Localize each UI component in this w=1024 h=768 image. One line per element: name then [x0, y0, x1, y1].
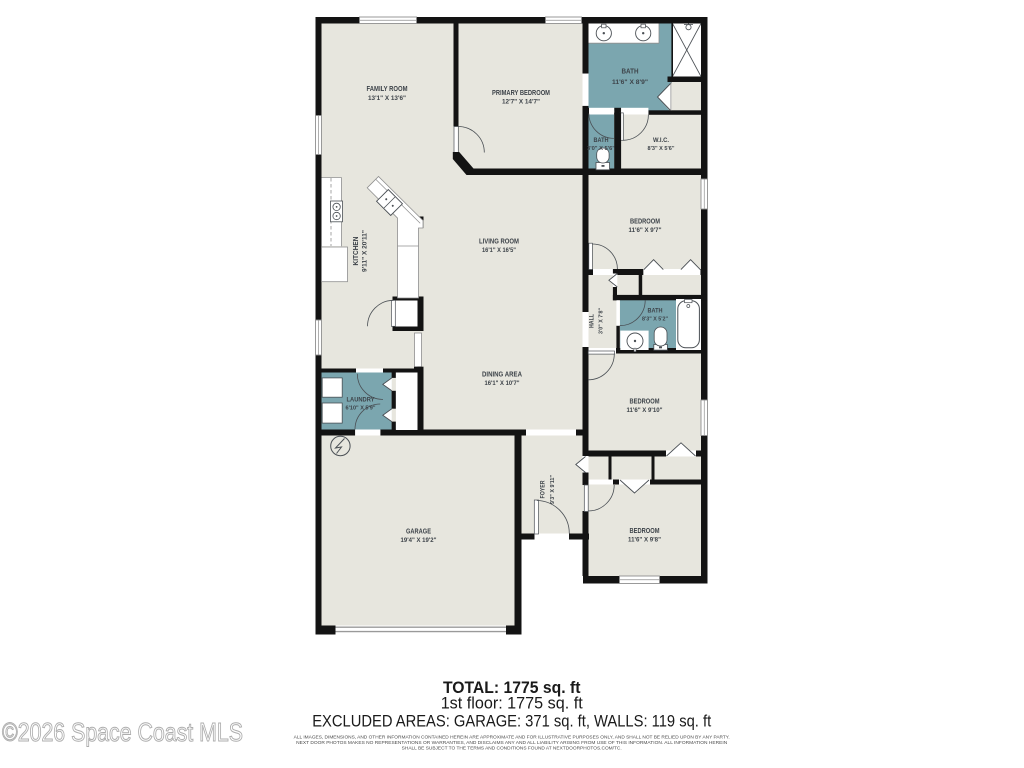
svg-text:8'3" X 5'2": 8'3" X 5'2" — [642, 316, 668, 322]
svg-text:FAMILY ROOM: FAMILY ROOM — [367, 86, 408, 93]
svg-text:BEDROOM: BEDROOM — [630, 218, 660, 225]
svg-text:KITCHEN: KITCHEN — [353, 237, 360, 266]
svg-text:11'6" X 9'10": 11'6" X 9'10" — [627, 407, 663, 414]
svg-text:NEXT DOOR PHOTOS MAKES NO REPR: NEXT DOOR PHOTOS MAKES NO REPRESENTATION… — [296, 740, 727, 745]
svg-text:8'3" X 5'6": 8'3" X 5'6" — [648, 146, 675, 152]
svg-text:11'6" X 8'9": 11'6" X 8'9" — [612, 79, 648, 86]
svg-text:GARAGE: GARAGE — [406, 529, 431, 536]
svg-text:11'6" X 9'8": 11'6" X 9'8" — [628, 537, 661, 544]
svg-text:11'6" X 9'7": 11'6" X 9'7" — [629, 227, 662, 234]
svg-text:12'7" X 14'7": 12'7" X 14'7" — [502, 99, 540, 106]
svg-text:LIVING ROOM: LIVING ROOM — [479, 239, 519, 246]
svg-text:SHALL BE SUBJECT TO THE TERMS: SHALL BE SUBJECT TO THE TERMS AND CONDIT… — [402, 746, 622, 751]
svg-text:BATH: BATH — [594, 138, 609, 144]
svg-text:DINING AREA: DINING AREA — [482, 371, 522, 378]
svg-text:©2026 Space Coast MLS: ©2026 Space Coast MLS — [2, 717, 243, 747]
svg-text:19'4" X 19'2": 19'4" X 19'2" — [401, 537, 437, 544]
svg-text:9'3" X 9'11": 9'3" X 9'11" — [550, 475, 556, 504]
svg-text:PRIMARY BEDROOM: PRIMARY BEDROOM — [492, 90, 550, 97]
svg-text:1st floor: 1775 sq. ft: 1st floor: 1775 sq. ft — [441, 695, 583, 713]
svg-text:BEDROOM: BEDROOM — [630, 528, 660, 535]
svg-text:16'1" X 10'7": 16'1" X 10'7" — [485, 380, 520, 387]
svg-text:6'10" X 5'9": 6'10" X 5'9" — [346, 406, 376, 412]
svg-text:3'0" X 5'6": 3'0" X 5'6" — [587, 146, 615, 152]
svg-text:BATH: BATH — [648, 309, 663, 315]
svg-text:9'11" X 20'11": 9'11" X 20'11" — [362, 230, 369, 272]
svg-text:ALL IMAGES, DIMENSIONS, AND OT: ALL IMAGES, DIMENSIONS, AND OTHER INFORM… — [294, 734, 730, 739]
svg-text:BEDROOM: BEDROOM — [630, 399, 660, 406]
svg-text:3'0" X 7'8": 3'0" X 7'8" — [599, 308, 605, 334]
svg-text:HALL: HALL — [590, 314, 596, 328]
svg-text:LAUNDRY: LAUNDRY — [347, 397, 375, 403]
svg-text:BATH: BATH — [622, 68, 639, 75]
svg-text:13'1" X 13'6": 13'1" X 13'6" — [368, 95, 406, 102]
svg-text:FOYER: FOYER — [541, 480, 547, 499]
svg-text:16'1" X 16'5": 16'1" X 16'5" — [482, 247, 516, 254]
svg-text:EXCLUDED AREAS: GARAGE: 371 sq: EXCLUDED AREAS: GARAGE: 371 sq. ft, WALL… — [312, 713, 711, 731]
svg-text:W.I.C.: W.I.C. — [653, 138, 669, 144]
